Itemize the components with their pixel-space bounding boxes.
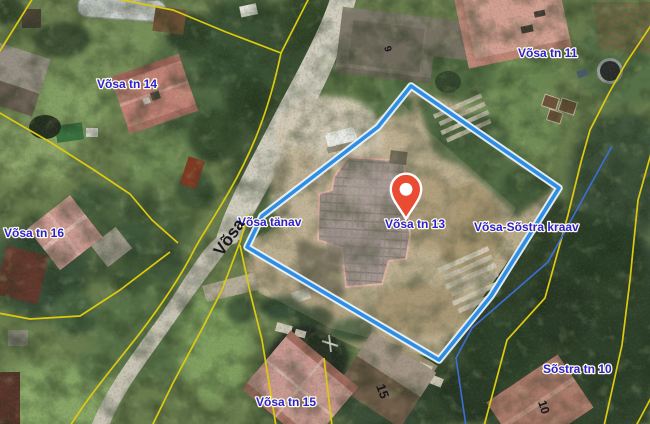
svg-text:Võsa-Sõstra kraav: Võsa-Sõstra kraav (474, 220, 579, 234)
svg-text:Võsa tn 13: Võsa tn 13 (385, 217, 445, 231)
svg-text:Võsa tn 14: Võsa tn 14 (97, 77, 157, 91)
svg-text:Võsa tn 15: Võsa tn 15 (256, 395, 316, 409)
svg-text:Võsa tn 11: Võsa tn 11 (518, 46, 578, 60)
svg-text:Võsa tn 16: Võsa tn 16 (4, 226, 64, 240)
svg-text:Sõstra tn 10: Sõstra tn 10 (543, 362, 612, 376)
